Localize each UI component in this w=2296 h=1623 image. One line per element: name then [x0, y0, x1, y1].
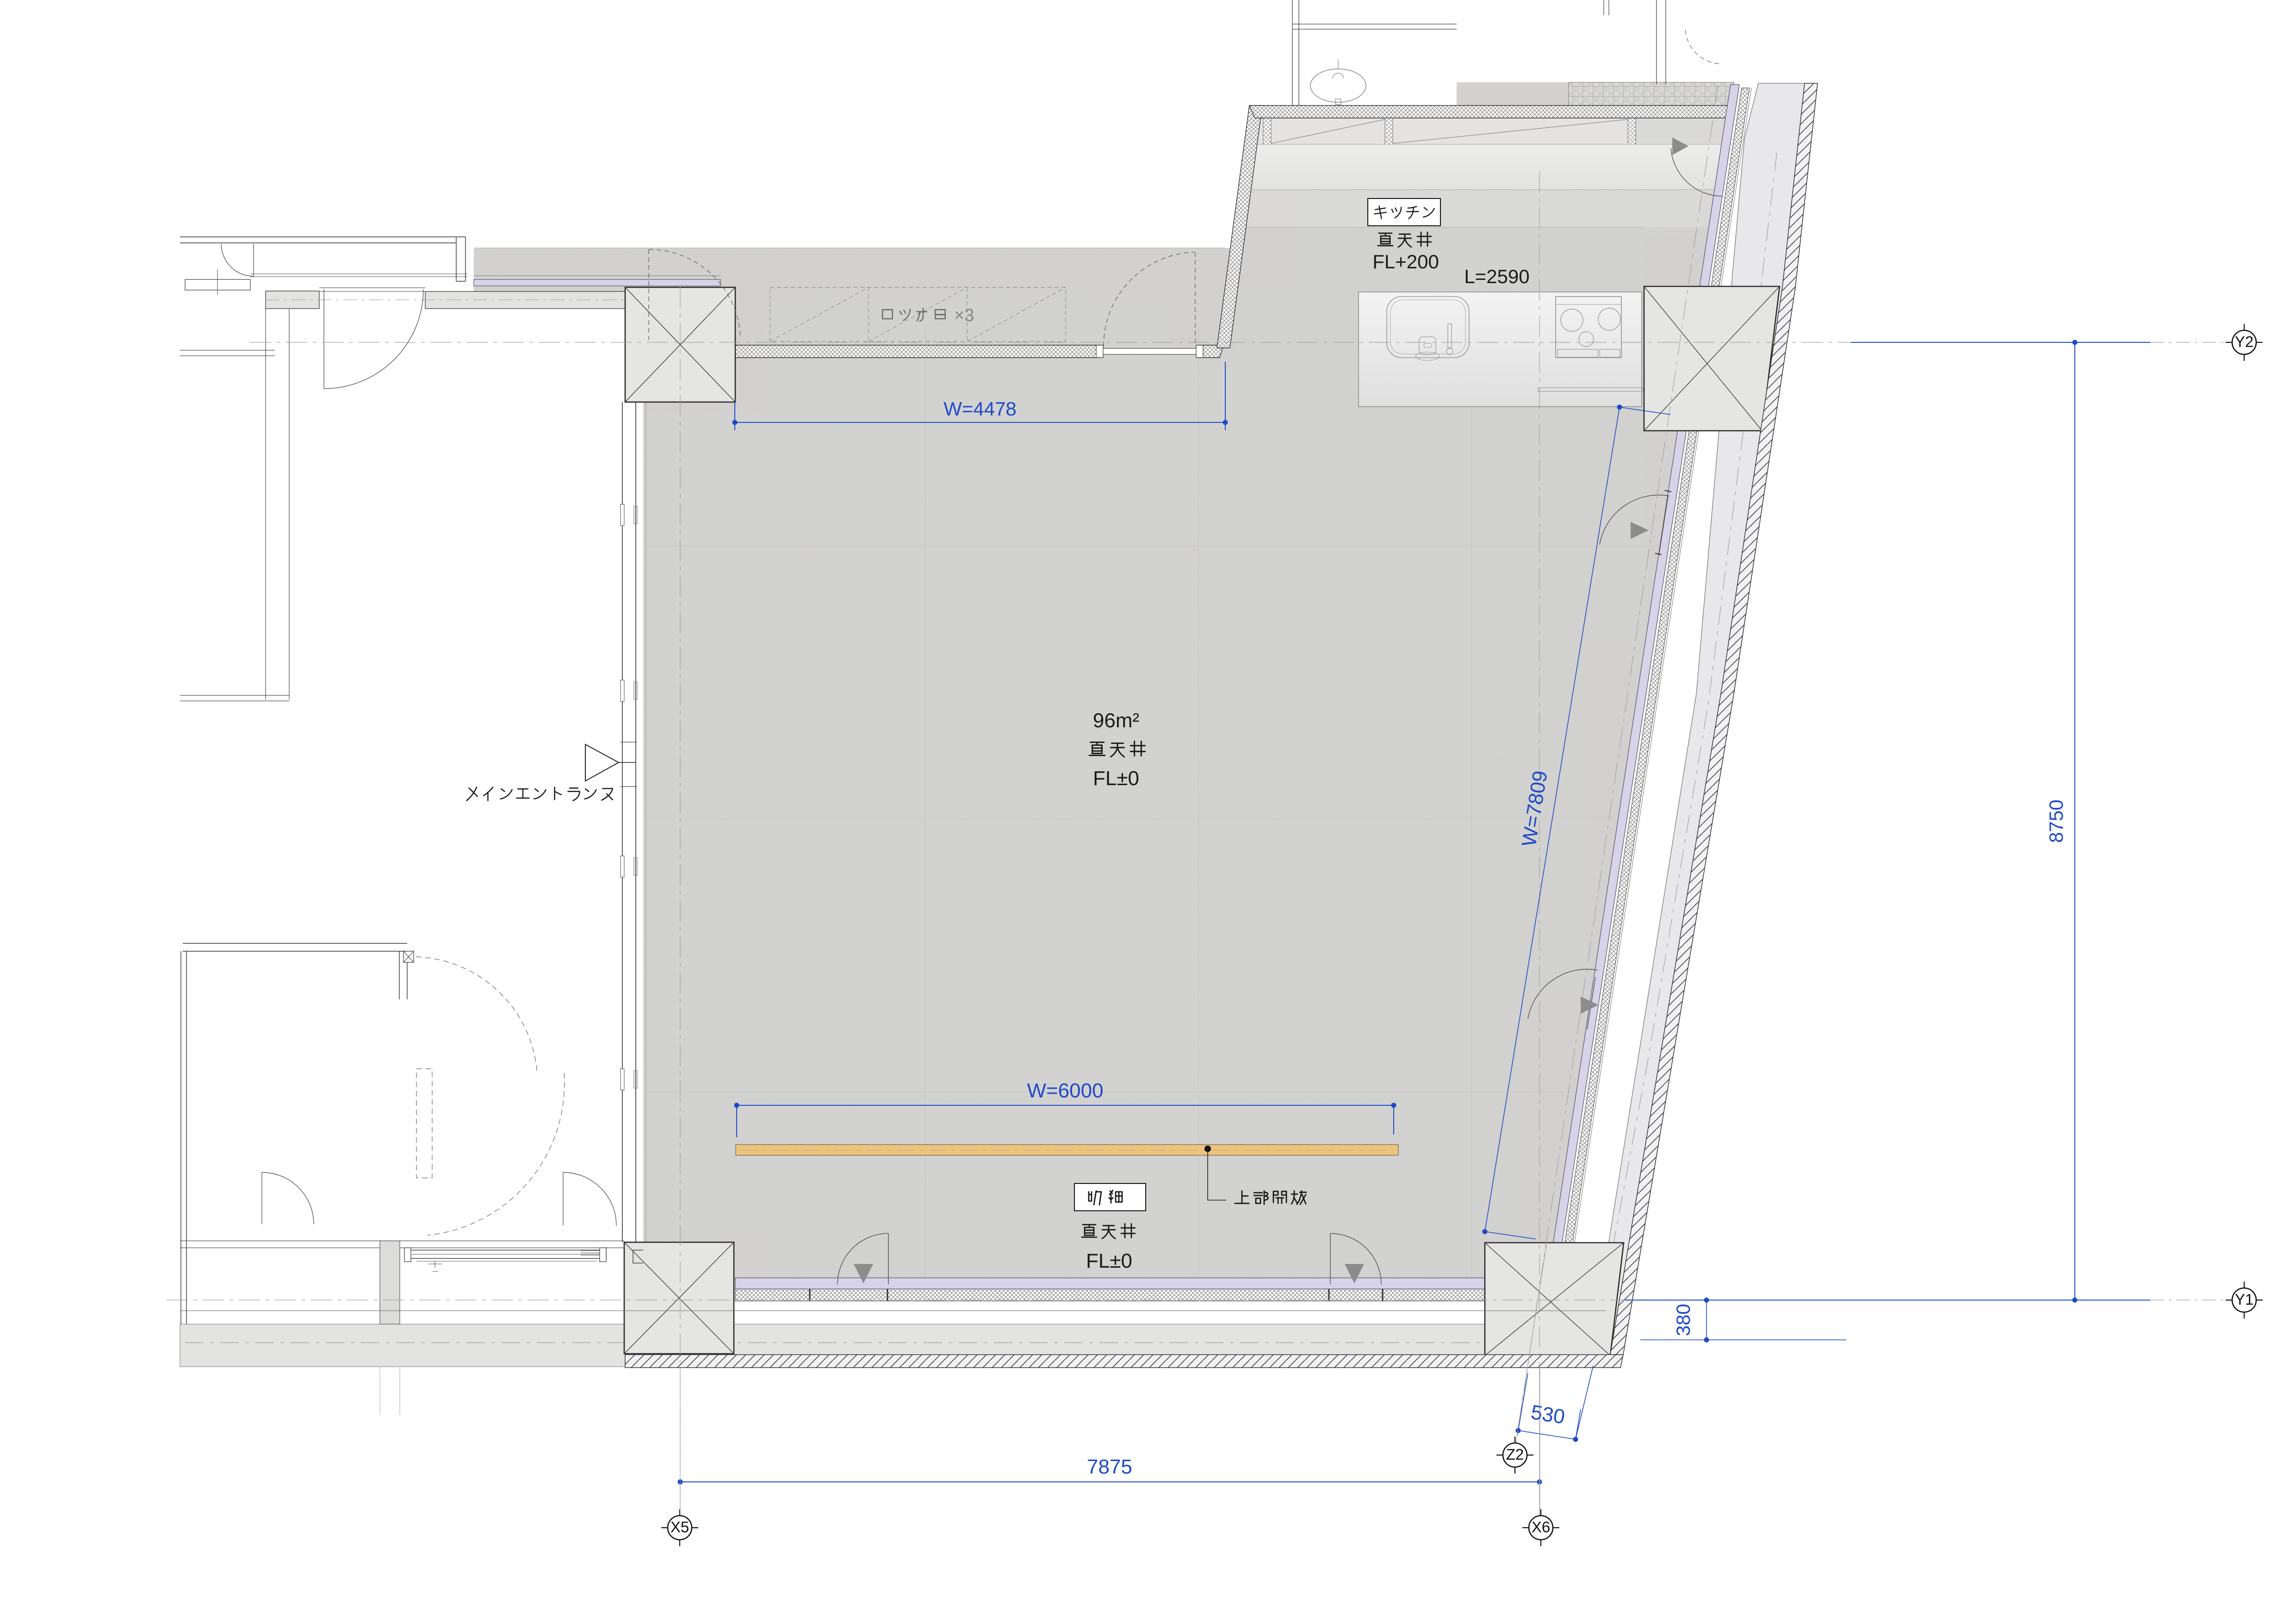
svg-text:FL+200: FL+200 [1372, 251, 1439, 273]
svg-text:380: 380 [1672, 1304, 1694, 1336]
svg-text:Y2: Y2 [2235, 333, 2253, 350]
svg-text:96m²: 96m² [1093, 709, 1139, 732]
svg-text:X5: X5 [670, 1518, 689, 1536]
svg-text:Z2: Z2 [1506, 1446, 1524, 1463]
svg-text:X6: X6 [1532, 1518, 1550, 1536]
svg-text:8750: 8750 [2045, 799, 2067, 842]
svg-text:L=2590: L=2590 [1464, 266, 1529, 287]
svg-text:FL±0: FL±0 [1093, 767, 1139, 790]
svg-text:×3: ×3 [954, 306, 974, 325]
svg-text:W=4478: W=4478 [943, 398, 1017, 420]
svg-text:FL±0: FL±0 [1086, 1250, 1132, 1272]
svg-text:7875: 7875 [1087, 1456, 1132, 1478]
svg-text:Y1: Y1 [2235, 1291, 2253, 1308]
svg-text:W=6000: W=6000 [1027, 1079, 1103, 1102]
